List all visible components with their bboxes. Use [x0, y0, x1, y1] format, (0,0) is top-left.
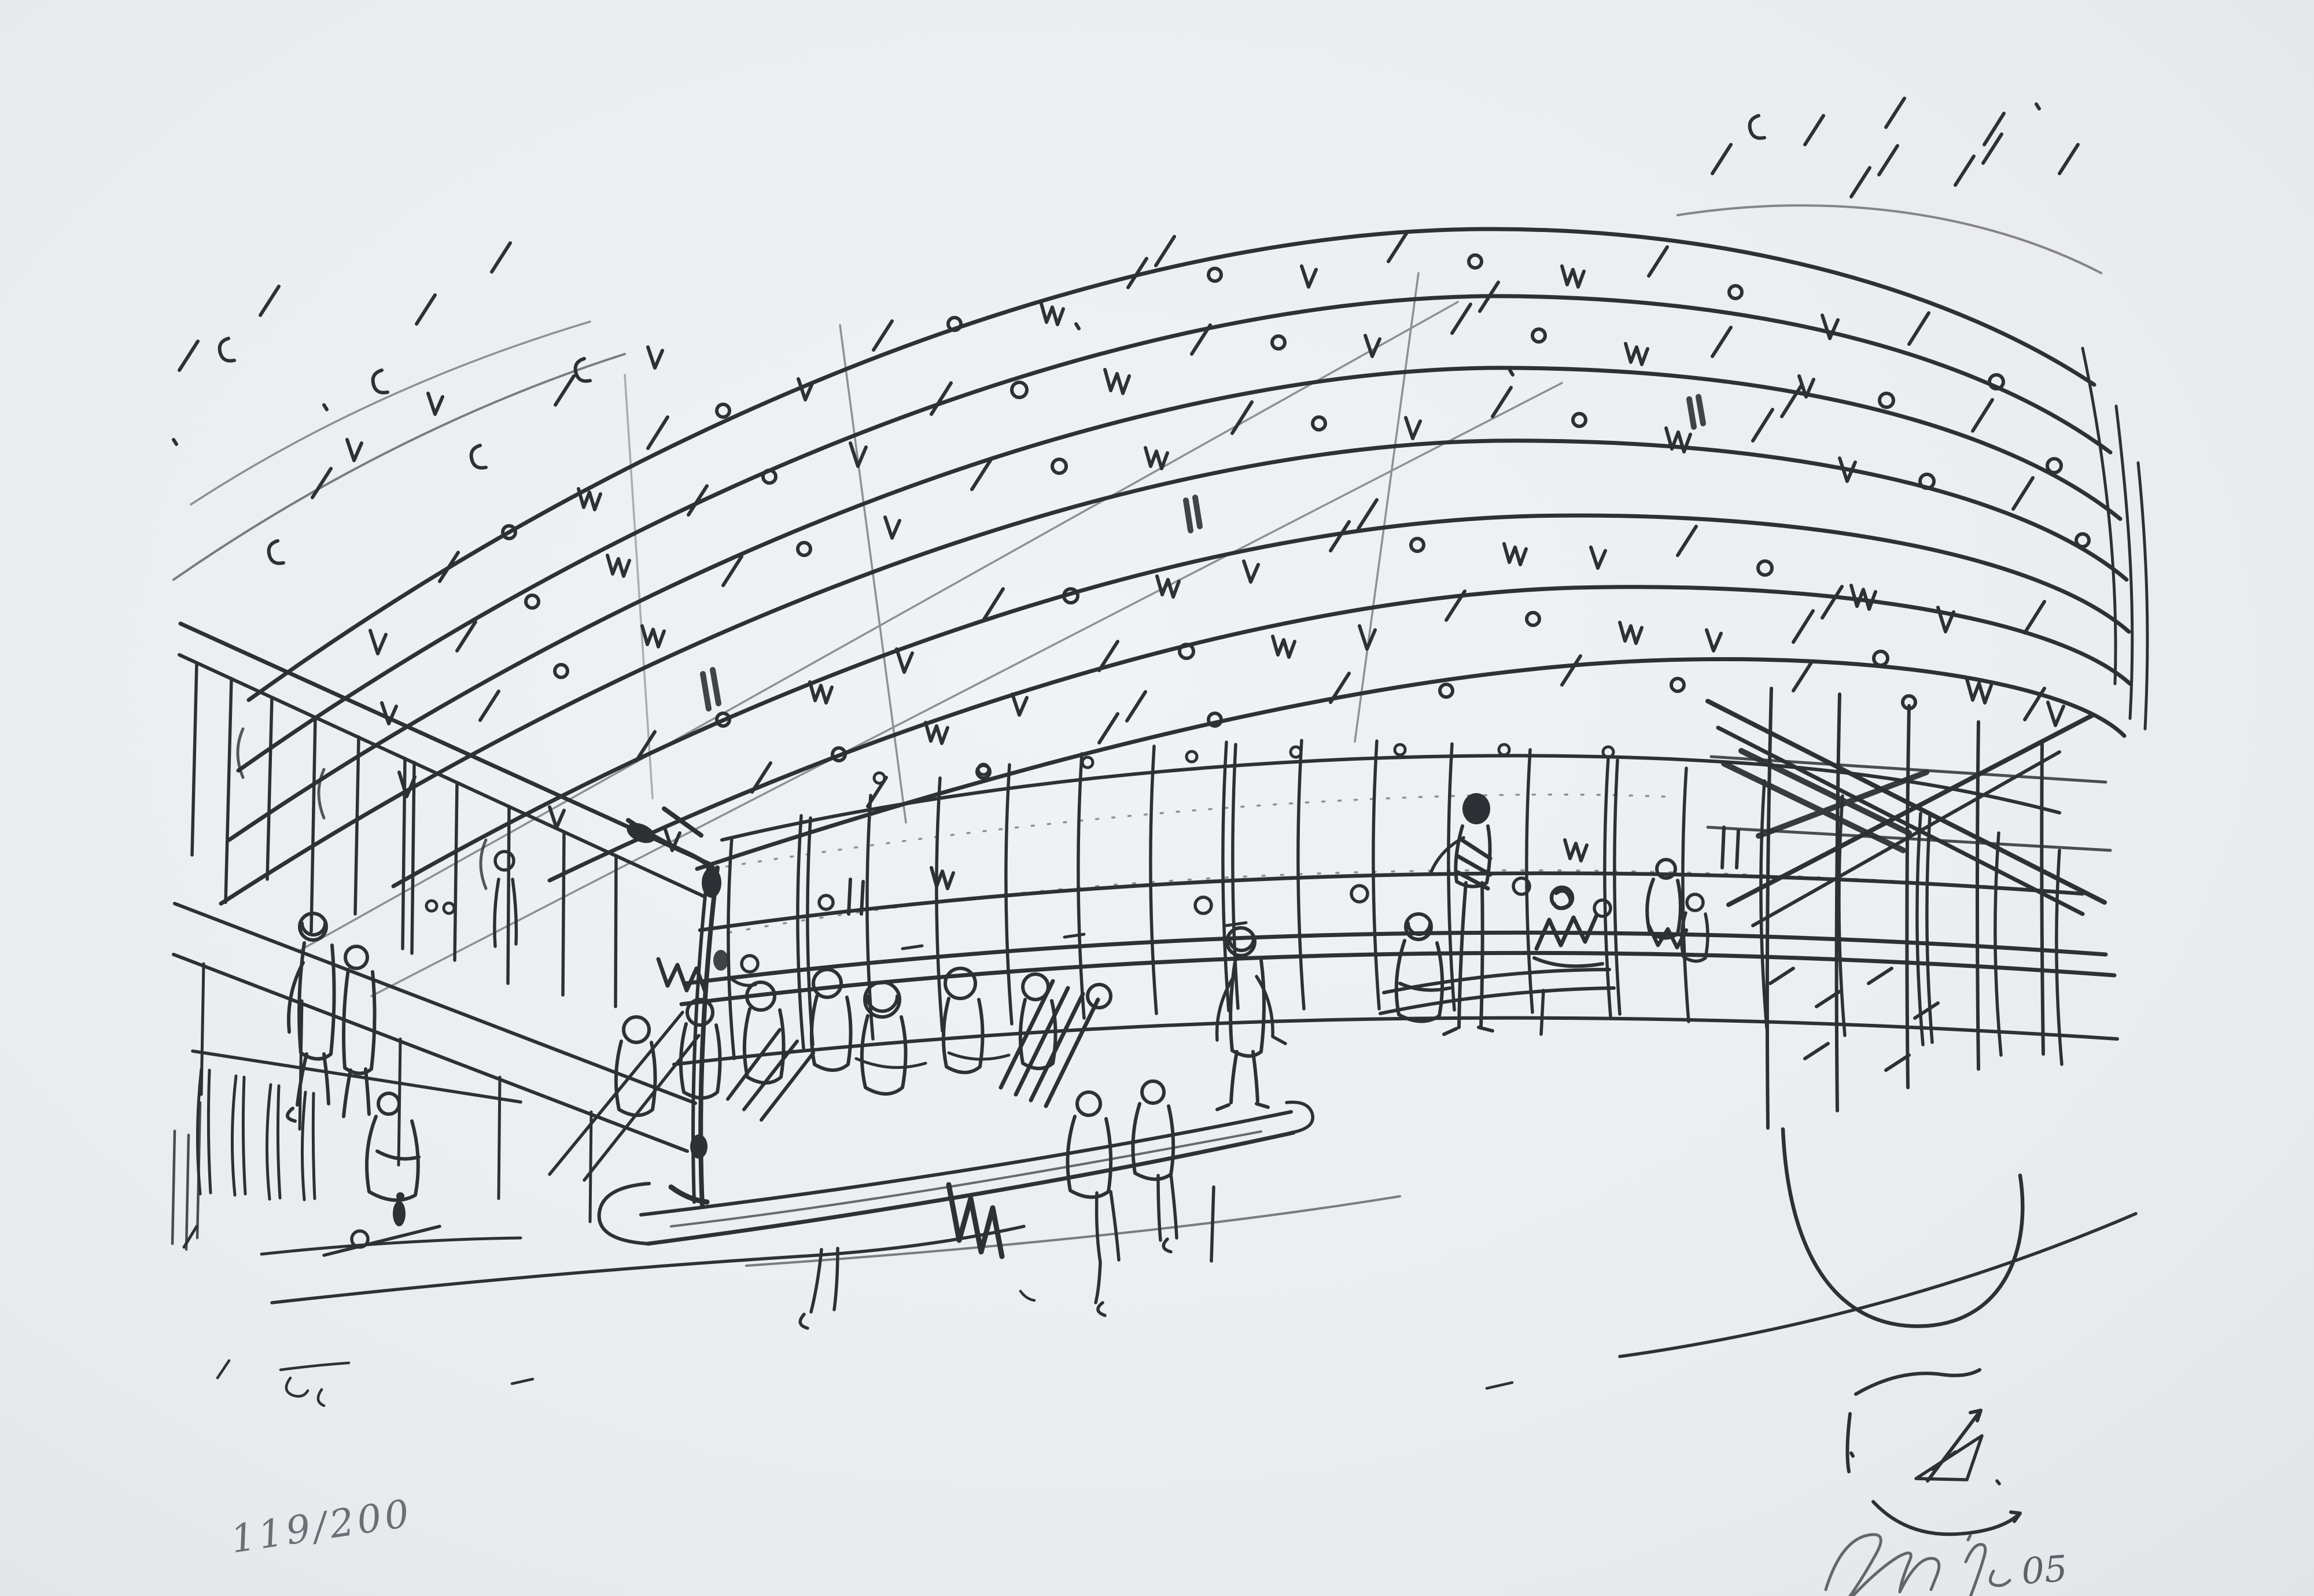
- left-side-wall: [172, 624, 713, 1249]
- stool-sitters: [1068, 1081, 1214, 1315]
- artist-monogram: [1847, 1370, 2020, 1534]
- bench-group: [1380, 887, 1614, 1034]
- signature-year: 05: [2020, 1547, 2069, 1593]
- construction-guide-lines: [301, 273, 2071, 996]
- standing-figure: [1217, 928, 1285, 1110]
- artist-signature: 05: [1826, 1535, 2069, 1596]
- seated-figure-left: [324, 1093, 440, 1255]
- roof-tick-marks: [174, 98, 2089, 850]
- artwork-photo: 05 119/200: [0, 0, 2314, 1596]
- walking-figures-left: [288, 913, 375, 1121]
- sketch-svg: 05: [0, 0, 2314, 1596]
- counter-table: [599, 1102, 1313, 1328]
